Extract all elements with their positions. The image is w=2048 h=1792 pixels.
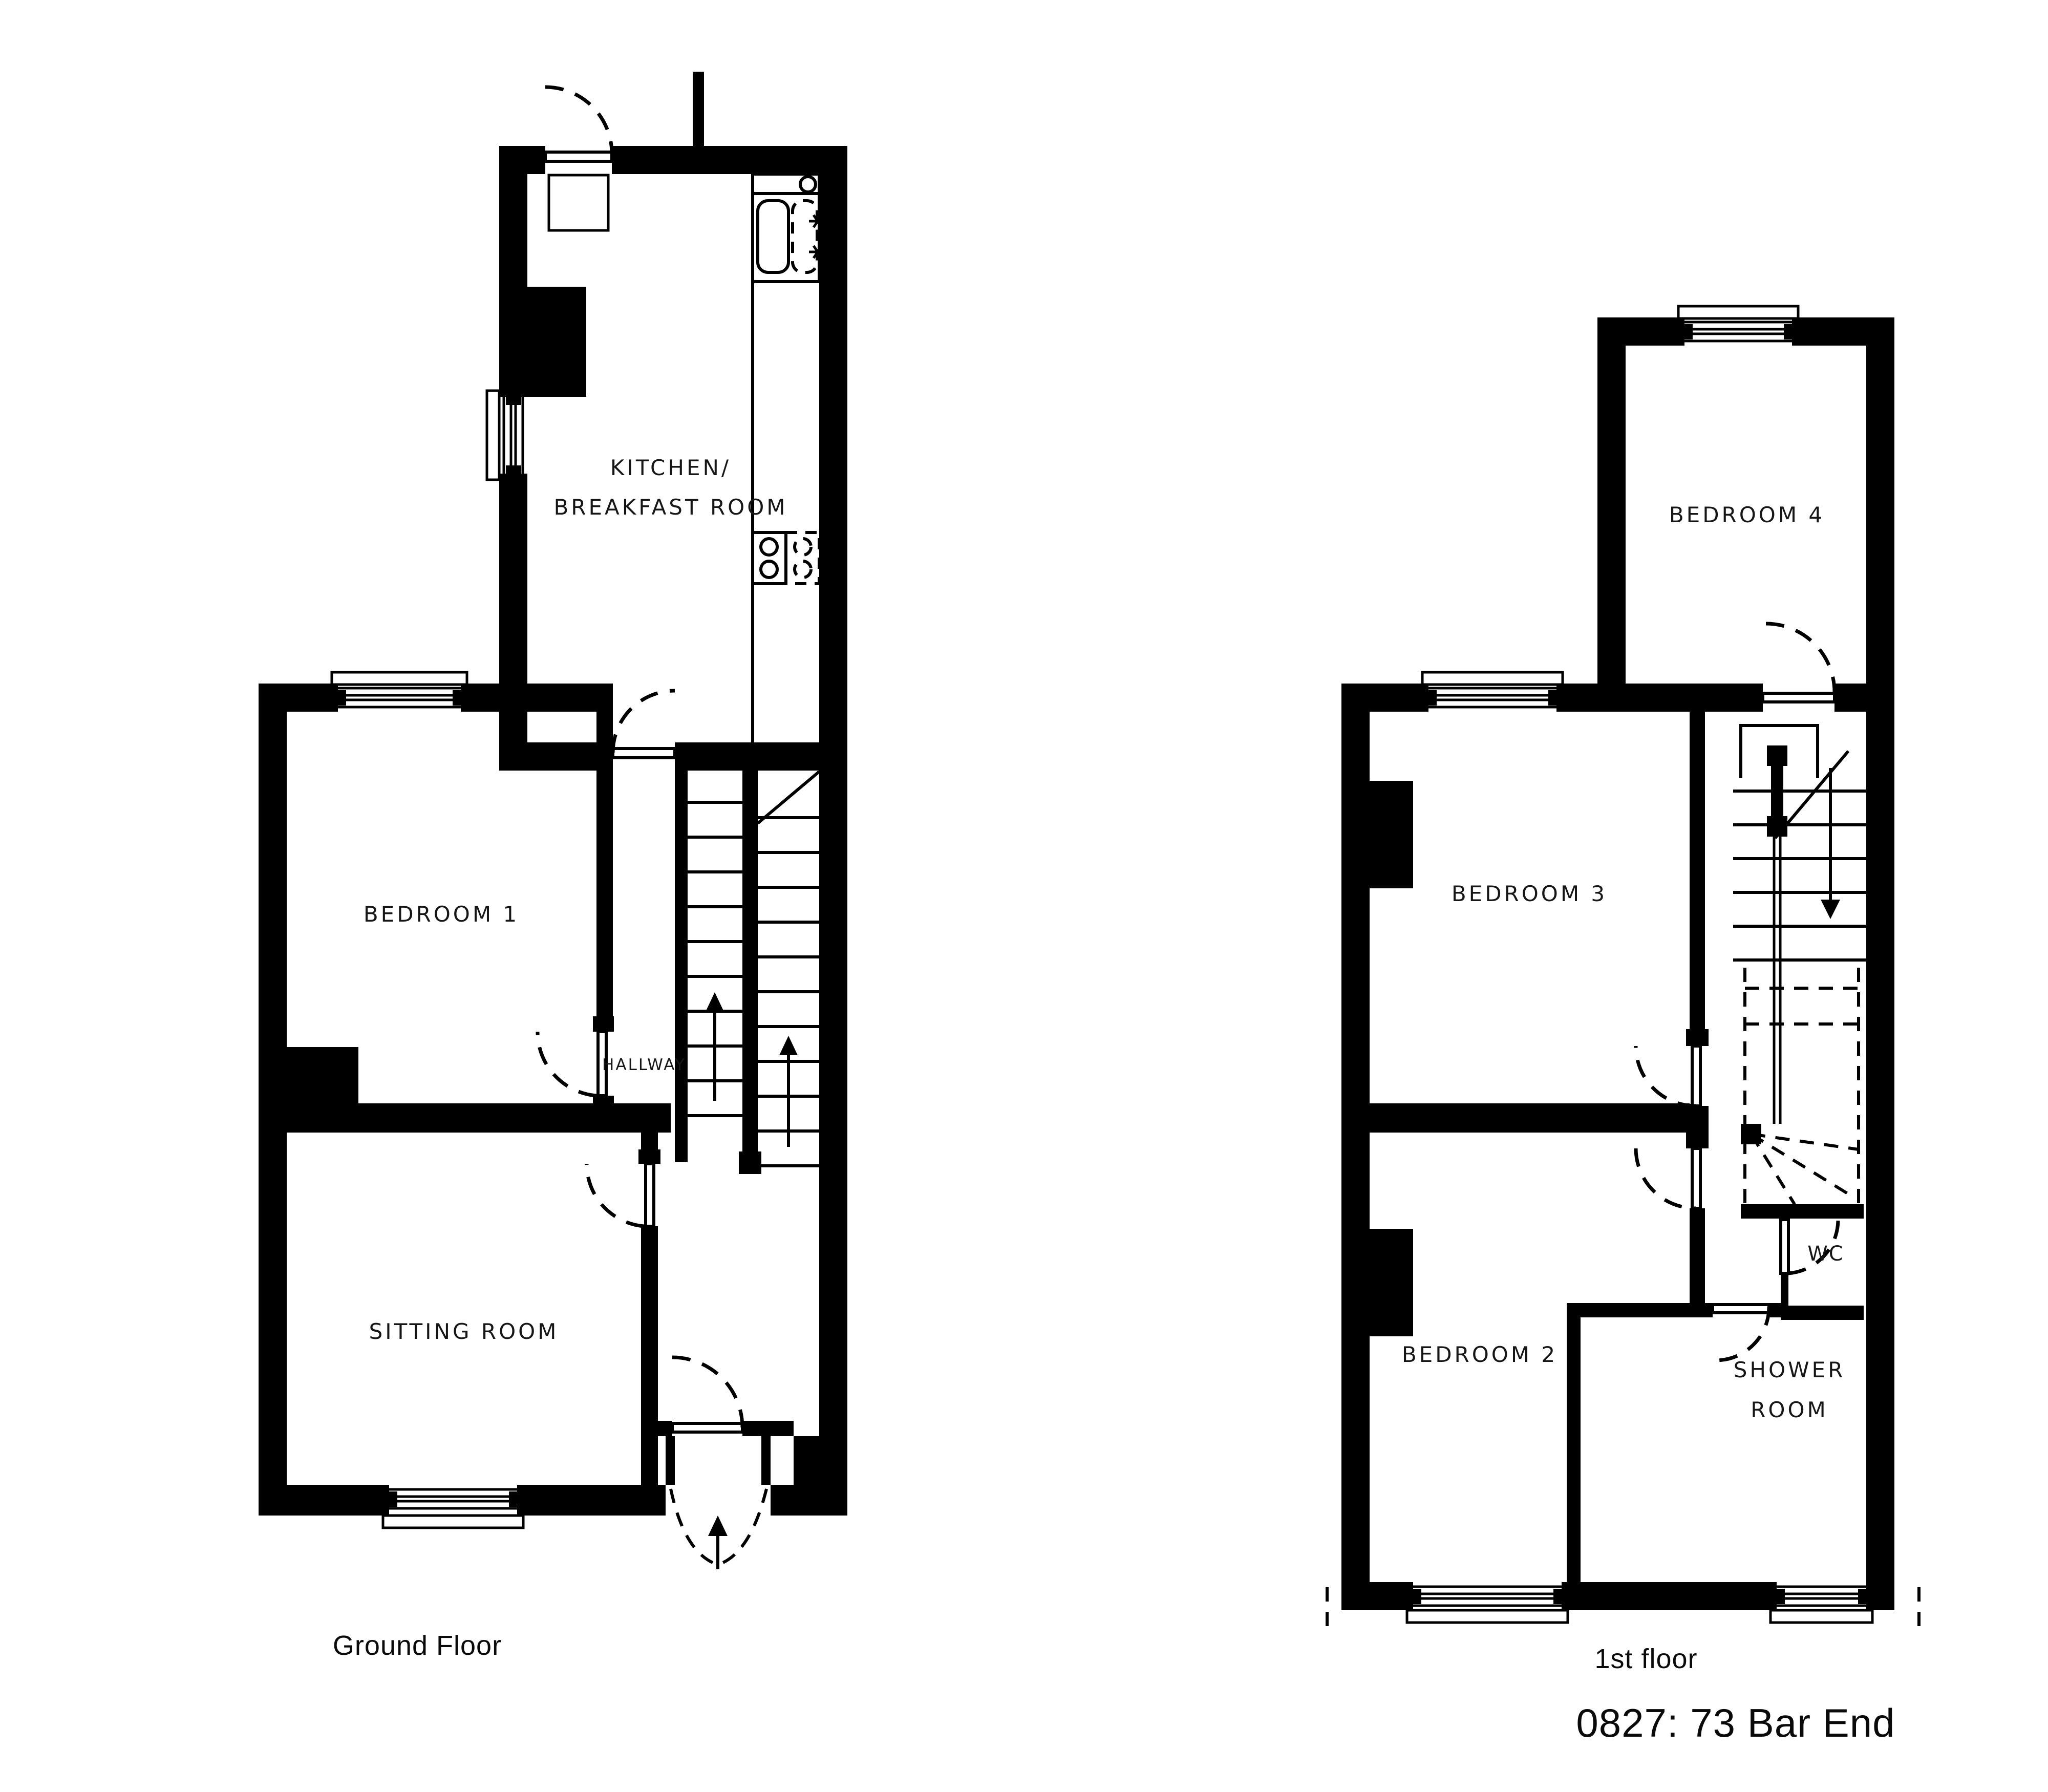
front-door bbox=[672, 1357, 742, 1432]
kitchen-label-line1: KITCHEN/ bbox=[610, 455, 731, 480]
first-floor-stairs bbox=[1733, 726, 1866, 1204]
shower-room-label-line1: SHOWER bbox=[1734, 1357, 1846, 1382]
kitchen-side-window bbox=[487, 391, 523, 480]
shower-room-window bbox=[1770, 1587, 1872, 1623]
page-title: 0827: 73 Bar End bbox=[1576, 1700, 1895, 1745]
bedroom1-window bbox=[332, 672, 467, 707]
bedroom2-window bbox=[1407, 1587, 1568, 1623]
first-floor-caption: 1st floor bbox=[1594, 1644, 1697, 1674]
sitting-room-label: SITTING ROOM bbox=[369, 1319, 559, 1344]
sitting-room-window bbox=[383, 1489, 523, 1528]
kitchen-hob bbox=[753, 532, 819, 584]
ground-floor-plan: KITCHEN/ BREAKFAST ROOM BEDROOM 1 HALLWA… bbox=[259, 72, 847, 1661]
kitchen-inner-door bbox=[613, 691, 675, 771]
ground-floor-walls bbox=[259, 72, 847, 1516]
floorplan-drawing: KITCHEN/ BREAKFAST ROOM BEDROOM 1 HALLWA… bbox=[0, 0, 2048, 1792]
bedroom4-window bbox=[1678, 306, 1798, 341]
first-floor-plan: BEDROOM 4 BEDROOM 3 BEDROOM 2 WC SHOWER … bbox=[1327, 306, 1919, 1674]
bedroom2-door bbox=[1636, 1148, 1700, 1208]
bedroom3-window bbox=[1422, 672, 1563, 707]
hallway-label: HALLWAY bbox=[602, 1056, 686, 1074]
bedroom3-label: BEDROOM 3 bbox=[1452, 881, 1607, 906]
bedroom1-door bbox=[538, 1032, 606, 1096]
kitchen-sink-unit bbox=[753, 174, 826, 282]
entrance-arrow bbox=[671, 1489, 766, 1569]
bedroom4-label: BEDROOM 4 bbox=[1669, 502, 1825, 527]
sitting-room-door bbox=[587, 1164, 654, 1226]
kitchen-label-line2: BREAKFAST ROOM bbox=[553, 495, 787, 520]
shower-room-label-line2: ROOM bbox=[1751, 1397, 1828, 1422]
floorplan-page: KITCHEN/ BREAKFAST ROOM BEDROOM 1 HALLWA… bbox=[0, 0, 2048, 1792]
kitchen-back-door bbox=[545, 87, 612, 230]
wc-label: WC bbox=[1807, 1242, 1844, 1266]
bedroom3-door bbox=[1636, 1046, 1700, 1106]
ground-floor-caption: Ground Floor bbox=[333, 1630, 502, 1661]
bedroom1-label: BEDROOM 1 bbox=[364, 902, 519, 927]
bedroom2-label: BEDROOM 2 bbox=[1402, 1342, 1558, 1367]
bedroom4-door bbox=[1763, 624, 1834, 702]
shower-room-door bbox=[1713, 1305, 1769, 1360]
